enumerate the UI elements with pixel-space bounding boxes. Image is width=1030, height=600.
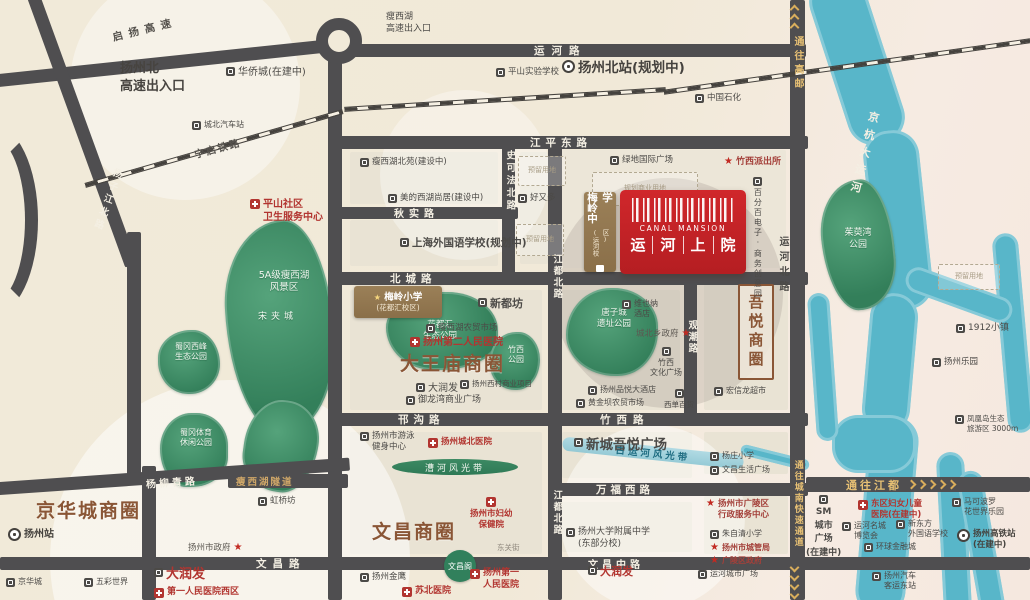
- yangzhuang-label: 杨庄小学: [722, 451, 754, 461]
- qiushi-rd-label: 秋实路: [394, 208, 439, 221]
- swim-label: 扬州市游泳 健身中心: [372, 431, 415, 453]
- pingshan-school: 平山实验学校: [496, 67, 559, 78]
- sinopec: 中国石化: [695, 93, 741, 104]
- hongqiaofang-label: 虹桥坊: [270, 496, 296, 507]
- xincheng-wuyue-label: 新城吾悦广场: [586, 437, 667, 455]
- marker-icon: [416, 383, 425, 392]
- canal-water: [832, 415, 916, 473]
- marker-icon: [478, 298, 487, 307]
- marker-icon: [710, 452, 719, 461]
- guangling-label: 广陵区政府: [722, 556, 762, 566]
- yunhebei-rd: 运河北路: [776, 236, 789, 296]
- marker-icon: [258, 497, 267, 506]
- marker-icon: [154, 568, 163, 577]
- yunhe-plaza: 运河城市广场: [698, 569, 758, 579]
- marker-icon: [675, 389, 684, 398]
- huanqiu-label: 环球金融城: [876, 542, 916, 552]
- jiangdu-dir: 通往江都: [846, 479, 902, 493]
- jiangdu-rd-a-label: 江都北路: [550, 254, 562, 300]
- wc-life: 文昌生活广场: [710, 465, 770, 475]
- yunhebei-rd-label: 运河北路: [776, 236, 789, 296]
- marker-icon: [360, 158, 369, 167]
- star-icon: ★: [374, 293, 381, 302]
- hongxinlong: 宏信龙超市: [714, 386, 766, 396]
- hosp1-label: 扬州第一 人民医院: [483, 568, 519, 591]
- marker-icon: [956, 324, 965, 333]
- ring-road-arc: [0, 124, 38, 316]
- hospital-cross-icon: [402, 587, 412, 597]
- darunfa3-label: 大润发: [166, 567, 205, 584]
- marker-icon: [952, 498, 961, 507]
- marker-icon: [518, 194, 527, 203]
- chengbei-hosp: 扬州城北医院: [428, 437, 492, 448]
- subei-label: 苏北医院: [415, 586, 451, 598]
- marker-icon: [588, 386, 597, 395]
- project-name-en: CANAL MANSION: [620, 224, 746, 233]
- zhuxi-park-label: 竹西 公园: [508, 345, 524, 364]
- marker-icon: [864, 543, 873, 552]
- makeboluo-label: 马可波罗 花世界乐园: [964, 497, 1004, 518]
- marker-icon: [566, 528, 575, 537]
- chengbei-bus-label: 城北汽车站: [204, 120, 244, 130]
- yulongwan-label: 御龙湾商业广场: [418, 395, 481, 407]
- sxh-market: 瘦西湖农贸市场: [426, 323, 498, 334]
- pingshan-shequ: 平山社区 卫生服务中心: [250, 198, 323, 224]
- wucai: 五彩世界: [84, 577, 128, 587]
- beicheng-rd-label: 北城路: [390, 273, 437, 287]
- xindufang: 新都坊: [478, 297, 523, 311]
- marker-icon: [714, 387, 723, 396]
- shouxihu-exit: 瘦西湖 高速出入口: [386, 12, 431, 35]
- bfb: 百分百电子·商务创意园: [752, 176, 762, 299]
- chevrons-right-icon: [908, 481, 955, 488]
- makeboluo: 马可波罗 花世界乐园: [952, 497, 1004, 518]
- hospital-cross-icon: [858, 500, 868, 510]
- lvdi-label: 绿地国际广场: [622, 155, 673, 166]
- jiangdu-rd-b-label: 江都北路: [550, 490, 562, 536]
- swim: 扬州市游泳 健身中心: [360, 431, 415, 453]
- songjiacheng-label: 宋夹城: [258, 312, 297, 322]
- caohe-scenic-belt: 漕河风光带: [392, 459, 518, 475]
- zhuziqing: 朱自清小学: [710, 529, 762, 539]
- marker-icon: [695, 94, 704, 103]
- xingzheng: ★扬州市广陵区 行政服务中心: [706, 499, 769, 521]
- school-icon: [596, 265, 604, 272]
- yzbei-exit: 扬州北 高速出入口: [120, 60, 185, 95]
- darunfa1-label: 大润发: [428, 382, 458, 395]
- wanfu-rd: 万福西路: [596, 484, 654, 498]
- darunfa2: 大润发: [588, 565, 633, 579]
- gaotie-label: 扬州高铁站 (在建中): [973, 529, 1016, 551]
- ghost1: 预留用地: [518, 156, 566, 186]
- wenchang-circle: 文昌商圈: [372, 520, 456, 545]
- yzbei-station: 扬州北站(规划中): [562, 60, 685, 78]
- jiangdu-rd-b: 江都北路: [550, 490, 562, 536]
- xincheng-wuyue: 新城吾悦广场: [574, 437, 667, 455]
- marker-icon: [426, 324, 435, 333]
- huangjinba: 黄金坝农贸市场: [576, 398, 644, 408]
- tunnel: 瘦西湖隧道: [236, 477, 294, 489]
- yz-station: 扬州站: [8, 528, 54, 541]
- sxh-market-label: 瘦西湖农贸市场: [438, 323, 498, 334]
- sxh-beiyuan: 瘦西湖北苑(建设中): [360, 157, 447, 168]
- jinying: 扬州金鹰: [360, 572, 406, 583]
- yulongwan: 御龙湾商业广场: [406, 395, 481, 407]
- gaotie: 扬州高铁站 (在建中): [957, 529, 1016, 551]
- decorative-circle: [70, 0, 300, 200]
- dongguan: 东关街: [497, 543, 520, 553]
- dwm-label: 大王庙商圈: [400, 352, 505, 377]
- pinyue-label: 扬州品悦大酒店: [600, 385, 656, 395]
- hongxinlong-label: 宏信龙超市: [726, 386, 766, 396]
- dongguan-label: 东关街: [497, 543, 520, 553]
- marker-icon: [576, 399, 585, 408]
- chevrons-up-icon: [791, 6, 798, 31]
- zhuxi-rd-label: 竹西路: [600, 414, 650, 428]
- dwm: 大王庙商圈: [400, 352, 505, 377]
- jinghuacheng-label: 京华城: [18, 577, 42, 587]
- zhuxi-culture-label: 竹西 文化广场: [650, 358, 682, 379]
- shugang-sports-label: 蜀冈体育 休闲公园: [180, 428, 212, 447]
- marker-icon: [360, 432, 369, 441]
- chengguan-label: 扬州市城管局: [722, 543, 770, 553]
- xindufang-label: 新都坊: [490, 297, 523, 311]
- hospital-cross-icon: [154, 588, 164, 598]
- hangou-rd: 邗沟路: [398, 414, 445, 428]
- yh-mingcheng: 运河名城 博览会: [842, 521, 886, 542]
- ghost2-label: 预留用地: [526, 235, 554, 244]
- huanqiu: 环球金融城: [864, 542, 916, 552]
- hongqiaofang: 虹桥坊: [258, 496, 296, 507]
- jiangping-rd: 江平东路: [530, 137, 592, 151]
- xidan: 西单百货: [664, 388, 694, 410]
- train-station-icon: [957, 529, 970, 542]
- gaoyou-label: 通往高邮: [791, 36, 804, 92]
- chengbeixiang: 城北乡政府★: [636, 329, 690, 340]
- marker-icon: [610, 156, 619, 165]
- star-icon: ★: [710, 543, 719, 553]
- zhuyuwan: 茱萸湾 公园: [830, 228, 886, 251]
- yunhe-rd: 运河路: [534, 45, 587, 59]
- shugang-xifeng: 蜀冈西峰 生态公园: [164, 342, 218, 363]
- wuxihu5a-label: 5A级瘦西湖 风景区: [259, 270, 310, 293]
- huangjinba-label: 黄金坝农贸市场: [588, 398, 644, 408]
- marker-icon: [406, 396, 415, 405]
- dongqu-hosp: 东区妇女儿童 医院(在建中): [858, 499, 922, 521]
- chengbeixiang-label: 城北乡政府: [636, 329, 679, 340]
- yangzhou-location-map: CANAL MANSION 运河上院 梅岭中学 (运河校区) ★ 梅岭小学 (花…: [0, 0, 1030, 600]
- road-shouxihu-road: [328, 38, 342, 600]
- darunfa1: 大润发: [416, 382, 458, 395]
- shugang-sports: 蜀冈体育 休闲公园: [168, 428, 224, 449]
- xingzheng-label: 扬州市广陵区 行政服务中心: [718, 499, 769, 521]
- haoyouduo-label: 好又多: [530, 193, 556, 204]
- marker-icon: [496, 68, 505, 77]
- jiangdu-dir-label: 通往江都: [846, 479, 902, 493]
- tag-title: 梅岭中学: [585, 192, 615, 227]
- train-station-icon: [8, 528, 21, 541]
- marker-icon: [6, 578, 15, 587]
- yz-gov: 扬州市政府★: [188, 543, 242, 554]
- yangzhuang: 杨庄小学: [710, 451, 754, 461]
- gaoyou: 通往高邮: [791, 36, 804, 92]
- chengbei-bus: 城北汽车站: [192, 120, 244, 130]
- ghost4: 预留用地: [938, 264, 1000, 290]
- pinyue: 扬州品悦大酒店: [588, 385, 656, 395]
- beicheng-rd: 北城路: [390, 273, 437, 287]
- yzbei-station-label: 扬州北站(规划中): [578, 60, 685, 78]
- xidan-label: 西单百货: [664, 400, 694, 410]
- marker-icon: [400, 238, 409, 247]
- road-wanfu-west-road: [556, 483, 808, 496]
- ghost4-label: 预留用地: [955, 272, 983, 281]
- zhuziqing-label: 朱自清小学: [722, 529, 762, 539]
- marker-icon: [698, 570, 707, 579]
- yzbei-exit-label: 扬州北 高速出入口: [120, 60, 185, 95]
- wucai-label: 五彩世界: [96, 577, 128, 587]
- jinying-label: 扬州金鹰: [372, 572, 406, 583]
- xindongfang: 新东方 外国语学校: [896, 519, 948, 540]
- star-icon: ★: [234, 543, 243, 553]
- huaqiaocheng: 华侨城(在建中): [226, 66, 306, 79]
- marker-icon: [819, 495, 828, 504]
- meidi: 美的西湖尚居(建设中): [388, 193, 483, 204]
- yh-mingcheng-label: 运河名城 博览会: [854, 521, 886, 542]
- xindongfang-label: 新东方 外国语学校: [908, 519, 948, 540]
- marker-icon: [588, 566, 597, 575]
- wenchang-circle-label: 文昌商圈: [372, 520, 456, 545]
- marker-icon: [842, 522, 851, 531]
- highway-interchange-icon: [316, 18, 362, 64]
- chevrons-down-icon: [791, 564, 798, 598]
- district-label: 吾悦商圈: [746, 294, 767, 370]
- fuyou-label: 扬州市妇幼 保健院: [470, 509, 513, 531]
- hospital2: 扬州第二人民医院: [410, 336, 503, 349]
- hosp1-west: 第一人民医院西区: [154, 587, 239, 599]
- shugang-xifeng-label: 蜀冈西峰 生态公园: [175, 342, 207, 361]
- marker-icon: [574, 438, 583, 447]
- marker-icon: [460, 380, 469, 389]
- marker-icon: [710, 466, 719, 475]
- jhc: 京华城商圈: [36, 499, 141, 524]
- road-yangzijiang-north-road: [127, 232, 141, 476]
- pingshan-school-label: 平山实验学校: [508, 67, 559, 78]
- zhuxi-rd: 竹西路: [600, 414, 650, 428]
- hospital2-label: 扬州第二人民医院: [423, 336, 503, 349]
- hosp1-west-label: 第一人民医院西区: [167, 587, 239, 599]
- jiangping-rd-label: 江平东路: [530, 137, 592, 151]
- canal-water: [802, 0, 911, 152]
- yz-gov-label: 扬州市政府: [188, 543, 231, 554]
- marker-icon: [622, 300, 631, 309]
- tunnel-label: 瘦西湖隧道: [236, 477, 294, 489]
- wuxihu5a: 5A级瘦西湖 风景区: [240, 270, 328, 295]
- fenghuang: 凤凰岛生态 旅游区 3000m: [955, 414, 1018, 434]
- songjiacheng: 宋夹城: [258, 312, 297, 324]
- sm-label: SM 城市 广场 (在建中): [806, 506, 841, 560]
- project-name-cn: 运河上院: [620, 236, 746, 254]
- hospital-cross-icon: [470, 569, 480, 579]
- chengbei-hosp-label: 扬州城北医院: [441, 437, 492, 448]
- barcode-art: [632, 198, 734, 222]
- project-logo-canal-mansion: CANAL MANSION 运河上院: [620, 190, 746, 274]
- star-icon: ★: [724, 157, 733, 167]
- marker-icon: [226, 67, 235, 76]
- star-icon: ★: [706, 499, 715, 509]
- hospital-cross-icon: [250, 199, 260, 209]
- marker-icon: [955, 415, 964, 424]
- hospital-cross-icon: [428, 438, 438, 448]
- xicun-label: 扬州西村商业项目: [472, 379, 532, 389]
- road-wenchang-road: [0, 557, 810, 570]
- t1912: 1912小镇: [956, 323, 1009, 335]
- canal-water: [860, 291, 920, 435]
- hospital-cross-icon: [410, 337, 420, 347]
- marker-icon: [932, 358, 941, 367]
- marker-icon: [710, 530, 719, 539]
- marker-icon: [872, 572, 881, 581]
- yunhe-rd-label: 运河路: [534, 45, 587, 59]
- shikefa-rd: 史可法北路: [503, 150, 515, 213]
- chengnan-label: 通往城南快速通道: [791, 460, 803, 548]
- scenic-belt-label: 漕河风光带: [425, 461, 485, 474]
- sinopec-label: 中国石化: [707, 93, 741, 104]
- fenghuang-label: 凤凰岛生态 旅游区 3000m: [967, 414, 1018, 434]
- yz-leyuan: 扬州乐园: [932, 357, 978, 368]
- huaqiaocheng-label: 华侨城(在建中): [238, 66, 306, 79]
- shangwai-label: 上海外国语学校(规划中): [412, 237, 527, 251]
- tag-subtitle: (运河校区): [590, 229, 610, 264]
- marker-icon: [360, 573, 369, 582]
- hospital-cross-icon: [486, 497, 496, 507]
- tag-title: ★ 梅岭小学: [374, 292, 423, 303]
- yz-station-label: 扬州站: [24, 528, 54, 541]
- shangwai: 上海外国语学校(规划中): [400, 237, 527, 251]
- chengnan: 通往城南快速通道: [791, 460, 803, 548]
- ghost1-label: 预留用地: [528, 166, 556, 175]
- meidi-label: 美的西湖尚居(建设中): [400, 193, 483, 204]
- chengguan: ★扬州市城管局: [710, 543, 770, 553]
- yzu-fz-label: 扬州大学附属中学 (东部分校): [578, 527, 650, 550]
- wanfu-rd-label: 万福西路: [596, 484, 654, 498]
- fuyou: 扬州市妇幼 保健院: [470, 496, 513, 531]
- vienna: 维也纳 酒店: [622, 299, 658, 320]
- zhuyuwan-label: 茱萸湾 公园: [844, 228, 871, 250]
- zhuxi-culture: 竹西 文化广场: [650, 346, 682, 379]
- shikefa-rd-label: 史可法北路: [503, 150, 515, 213]
- canal-water: [807, 292, 839, 441]
- darunfa2-label: 大润发: [600, 565, 633, 579]
- marker-icon: [896, 520, 905, 529]
- hangou-rd-label: 邗沟路: [398, 414, 445, 428]
- star-icon: ★: [710, 556, 719, 566]
- wenchang-rd-label: 文昌路: [256, 558, 306, 572]
- subei: 苏北医院: [402, 586, 451, 598]
- landmark-label: 文昌阁: [448, 561, 472, 572]
- yzu-fz: 扬州大学附属中学 (东部分校): [566, 527, 650, 550]
- marker-icon: [388, 194, 397, 203]
- darunfa3: 大润发: [154, 567, 205, 584]
- qichezhan: 扬州汽车 客运东站: [872, 571, 916, 592]
- marker-icon: [662, 347, 671, 356]
- yunhe-plaza-label: 运河城市广场: [710, 569, 758, 579]
- xicun: 扬州西村商业项目: [460, 379, 532, 389]
- tag-subtitle: (花都汇校区): [376, 303, 419, 312]
- marker-icon: [753, 177, 762, 186]
- wc-life-label: 文昌生活广场: [722, 465, 770, 475]
- meiling-primary-school-tag: ★ 梅岭小学 (花都汇校区): [354, 286, 442, 318]
- zhuxi-pcs-label: 竹西派出所: [736, 157, 781, 169]
- qiushi-rd: 秋实路: [394, 208, 439, 221]
- train-station-icon: [562, 60, 575, 73]
- jhc-label: 京华城商圈: [36, 499, 141, 524]
- yz-leyuan-label: 扬州乐园: [944, 357, 978, 368]
- guangling: ★广陵区政府: [710, 556, 762, 566]
- haoyouduo: 好又多: [518, 193, 556, 204]
- bfb-label: 百分百电子·商务创意园: [752, 188, 762, 299]
- t1912-label: 1912小镇: [968, 323, 1009, 335]
- sxh-beiyuan-label: 瘦西湖北苑(建设中): [372, 157, 447, 168]
- marker-icon: [84, 578, 93, 587]
- hosp1: 扬州第一 人民医院: [470, 568, 519, 591]
- pingshan-shequ-label: 平山社区 卫生服务中心: [263, 198, 323, 224]
- vienna-label: 维也纳 酒店: [634, 299, 658, 320]
- star-icon: ★: [682, 329, 691, 339]
- zhuxi-pcs: ★竹西派出所: [724, 157, 781, 169]
- dongqu-hosp-label: 东区妇女儿童 医院(在建中): [871, 499, 922, 521]
- qichezhan-label: 扬州汽车 客运东站: [884, 571, 916, 592]
- lvdi: 绿地国际广场: [610, 155, 673, 166]
- shouxihu-exit-label: 瘦西湖 高速出入口: [386, 12, 431, 35]
- jiangdu-rd-a: 江都北路: [550, 254, 562, 300]
- wenchang-rd: 文昌路: [256, 558, 306, 572]
- sm: SM 城市 广场 (在建中): [806, 494, 841, 560]
- jinghuacheng: 京华城: [6, 577, 42, 587]
- meiling-middle-school-tag: 梅岭中学 (运河校区): [584, 192, 616, 272]
- marker-icon: [192, 121, 201, 130]
